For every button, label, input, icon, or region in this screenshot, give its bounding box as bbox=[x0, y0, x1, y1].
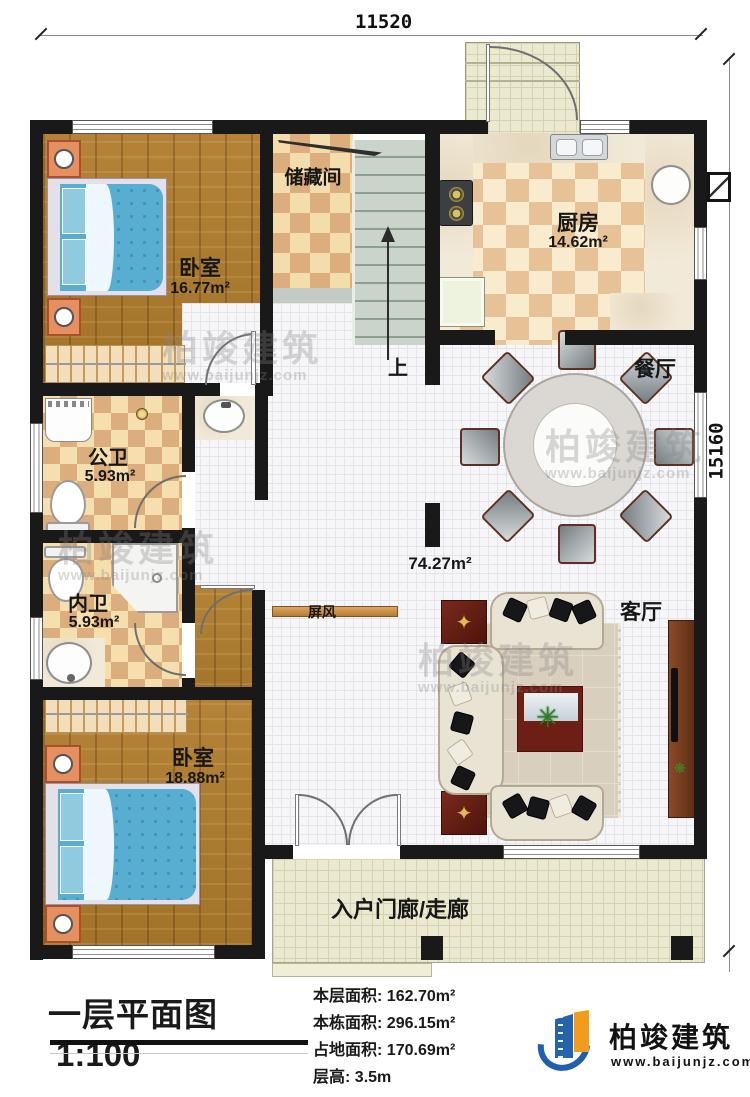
stat-value: 170.69m² bbox=[387, 1042, 456, 1059]
kitchen-counter-right bbox=[645, 133, 697, 298]
sheet-fold bbox=[86, 184, 114, 291]
stairs-up-label: 上 bbox=[388, 352, 408, 381]
wall bbox=[262, 845, 293, 859]
wall bbox=[252, 590, 265, 959]
pillow bbox=[60, 793, 84, 841]
room-area-bath-public: 5.93m² bbox=[85, 468, 136, 486]
room-area-kitchen: 14.62m² bbox=[548, 234, 608, 252]
logo: 柏竣建筑 www.baijunjz.com bbox=[535, 1006, 745, 1081]
burner bbox=[449, 187, 464, 202]
window bbox=[72, 120, 213, 134]
watermark-text: 柏竣建筑 bbox=[418, 642, 578, 680]
stairs-landing bbox=[270, 288, 352, 304]
nightstand bbox=[45, 905, 81, 943]
dim-tick bbox=[695, 28, 708, 41]
wall bbox=[213, 120, 488, 134]
door-opening bbox=[293, 845, 400, 859]
logo-tower-orange bbox=[574, 1010, 589, 1052]
title-underline-thin bbox=[50, 1053, 308, 1054]
room-label-storage: 储藏间 bbox=[284, 163, 341, 190]
wall bbox=[182, 396, 195, 472]
window bbox=[30, 423, 43, 513]
wall bbox=[425, 133, 440, 385]
hall-area-label: 74.27m² bbox=[408, 554, 471, 574]
wall bbox=[30, 945, 72, 959]
pillow bbox=[62, 239, 86, 285]
watermark: 柏竣建筑 www.baijunjz.com bbox=[58, 530, 218, 584]
stat-label: 层高: bbox=[313, 1069, 350, 1086]
room-label-bedroom1: 卧室 bbox=[179, 252, 221, 282]
lamp bbox=[54, 149, 74, 169]
control-panel bbox=[48, 401, 89, 407]
toilet bbox=[50, 480, 86, 526]
tv bbox=[671, 668, 678, 742]
nightstand bbox=[45, 745, 81, 783]
wall bbox=[30, 687, 265, 700]
wall bbox=[255, 383, 268, 500]
vanity-sink bbox=[203, 399, 245, 433]
lamp bbox=[53, 914, 73, 934]
wardrobe bbox=[45, 695, 187, 733]
window bbox=[580, 120, 630, 134]
lamp bbox=[53, 754, 73, 774]
room-area-bath-private: 5.93m² bbox=[69, 614, 120, 632]
pendant-lamp bbox=[136, 408, 148, 420]
stat-row: 占地面积: 170.69m² bbox=[313, 1037, 538, 1064]
dining-chair bbox=[460, 428, 500, 466]
watermark: 柏竣建筑 www.baijunjz.com bbox=[162, 330, 322, 384]
watermark-url: www.baijunjz.com bbox=[545, 466, 705, 482]
bed bbox=[47, 178, 167, 296]
plan-title-row: 一层平面图 1:100 bbox=[48, 988, 313, 1074]
kitchen-round-table bbox=[651, 165, 691, 205]
side-table: ✦ bbox=[441, 791, 487, 835]
room-label-bath-public: 公卫 bbox=[88, 442, 128, 471]
sink-basin bbox=[556, 139, 577, 156]
floor-plan-page: 11520 15160 bbox=[0, 0, 750, 1097]
stat-row: 本层面积: 162.70m² bbox=[313, 983, 538, 1010]
wall bbox=[30, 120, 43, 423]
wall bbox=[30, 513, 43, 617]
stat-label: 本层面积: bbox=[313, 988, 382, 1005]
table-plant: ✳ bbox=[536, 701, 559, 734]
room-label-bath-private: 内卫 bbox=[68, 588, 108, 617]
watermark-url: www.baijunjz.com bbox=[162, 368, 322, 384]
door-leaf bbox=[397, 794, 401, 846]
sheet-fold bbox=[84, 789, 114, 900]
wall bbox=[694, 498, 707, 859]
wall bbox=[640, 845, 707, 859]
room-area-bedroom1: 16.77m² bbox=[170, 280, 230, 298]
porch-column bbox=[671, 936, 693, 960]
wall bbox=[30, 383, 220, 396]
window bbox=[503, 845, 640, 859]
porch-column bbox=[421, 936, 443, 960]
bed bbox=[45, 783, 200, 905]
wall bbox=[425, 330, 495, 345]
logo-url: www.baijunjz.com bbox=[611, 1054, 750, 1069]
stat-row: 本栋面积: 296.15m² bbox=[313, 1010, 538, 1037]
wall bbox=[425, 503, 440, 547]
stat-value: 162.70m² bbox=[387, 988, 456, 1005]
storage-floor bbox=[270, 133, 353, 290]
title-underline bbox=[50, 1040, 308, 1045]
faucet bbox=[221, 402, 231, 408]
dim-tick bbox=[35, 28, 48, 41]
watermark-url: www.baijunjz.com bbox=[418, 680, 578, 696]
window bbox=[72, 945, 215, 959]
bathroom-sink bbox=[46, 642, 92, 684]
window bbox=[30, 617, 43, 680]
fridge bbox=[439, 277, 485, 327]
coffee-table: ✳ bbox=[517, 686, 583, 752]
room-label-living: 客厅 bbox=[620, 596, 662, 626]
dining-chair bbox=[558, 524, 596, 564]
porch-label: 入户门廊/走廊 bbox=[331, 892, 469, 924]
entry-porch-step bbox=[272, 963, 432, 977]
stat-row: 层高: 3.5m bbox=[313, 1064, 538, 1091]
pillow bbox=[62, 188, 86, 234]
watermark-text: 柏竣建筑 bbox=[545, 428, 705, 466]
room-area-bedroom2: 18.88m² bbox=[165, 770, 225, 788]
watermark-url: www.baijunjz.com bbox=[58, 568, 218, 584]
stat-value: 3.5m bbox=[355, 1069, 391, 1086]
burner bbox=[449, 206, 464, 221]
stair-arrow-head bbox=[381, 226, 395, 242]
side-table: ✦ bbox=[441, 600, 487, 644]
flue-box bbox=[707, 172, 731, 202]
top-dimension-value: 11520 bbox=[355, 11, 412, 33]
sink-basin bbox=[582, 139, 603, 156]
watermark: 柏竣建筑 www.baijunjz.com bbox=[418, 642, 578, 696]
stove bbox=[439, 180, 473, 226]
stat-value: 296.15m² bbox=[387, 1015, 456, 1032]
pillow bbox=[60, 846, 84, 894]
stat-label: 占地面积: bbox=[313, 1042, 382, 1059]
wall bbox=[694, 120, 707, 227]
kitchen-sink bbox=[550, 134, 608, 160]
watermark-text: 柏竣建筑 bbox=[58, 530, 218, 568]
stats-block: 本层面积: 162.70m² 本栋面积: 296.15m² 占地面积: 170.… bbox=[313, 983, 538, 1091]
room-label-kitchen: 厨房 bbox=[557, 207, 599, 237]
nightstand bbox=[47, 298, 81, 336]
screen-label: 屏风 bbox=[308, 602, 336, 622]
watermark: 柏竣建筑 www.baijunjz.com bbox=[545, 428, 705, 482]
stat-label: 本栋面积: bbox=[313, 1015, 382, 1032]
faucet bbox=[67, 674, 75, 682]
washing-machine bbox=[45, 398, 92, 442]
logo-name: 柏竣建筑 bbox=[609, 1016, 733, 1056]
logo-tower-blue bbox=[555, 1014, 573, 1058]
wall bbox=[30, 680, 43, 960]
nightstand bbox=[47, 140, 81, 178]
stair-arrow-line bbox=[387, 238, 389, 360]
logo-building-icon bbox=[535, 1006, 603, 1076]
wall bbox=[565, 330, 707, 345]
top-dimension-line bbox=[40, 35, 703, 36]
wardrobe-rod bbox=[46, 713, 188, 715]
watermark-text: 柏竣建筑 bbox=[162, 330, 322, 368]
window bbox=[694, 227, 707, 280]
room-label-bedroom2: 卧室 bbox=[172, 742, 214, 772]
plan-title: 一层平面图 bbox=[48, 996, 218, 1033]
wall bbox=[400, 845, 503, 859]
room-label-dining: 餐厅 bbox=[634, 353, 676, 383]
cabinet-plant: ❋ bbox=[674, 760, 686, 777]
kitchen-counter-corner bbox=[610, 293, 697, 335]
right-dimension-value: 15160 bbox=[706, 422, 728, 479]
lamp bbox=[54, 307, 74, 327]
